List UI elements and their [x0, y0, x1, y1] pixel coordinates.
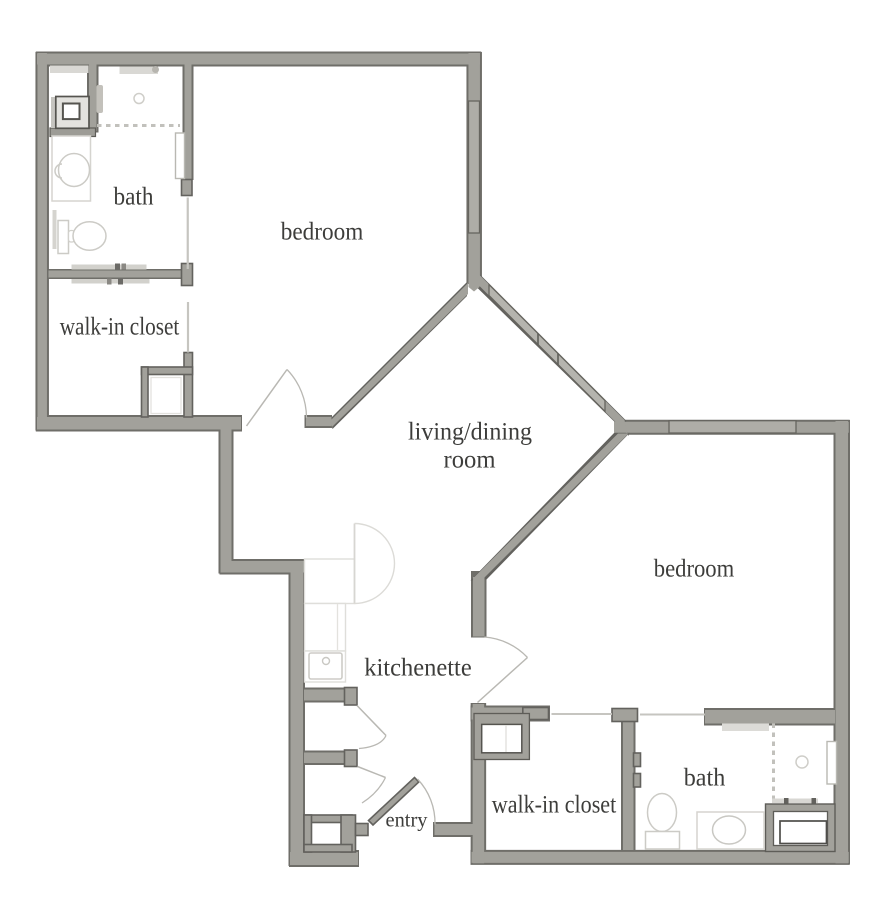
- svg-text:walk-in closet: walk-in closet: [492, 792, 617, 819]
- svg-text:room: room: [444, 447, 497, 474]
- svg-text:bedroom: bedroom: [654, 556, 735, 583]
- svg-text:bath: bath: [684, 765, 726, 792]
- svg-text:bath: bath: [114, 184, 154, 211]
- svg-text:walk-in closet: walk-in closet: [60, 314, 180, 341]
- svg-text:bedroom: bedroom: [281, 219, 364, 246]
- svg-text:entry: entry: [386, 808, 428, 832]
- svg-text:living/dining: living/dining: [408, 419, 532, 446]
- svg-text:kitchenette: kitchenette: [364, 655, 472, 682]
